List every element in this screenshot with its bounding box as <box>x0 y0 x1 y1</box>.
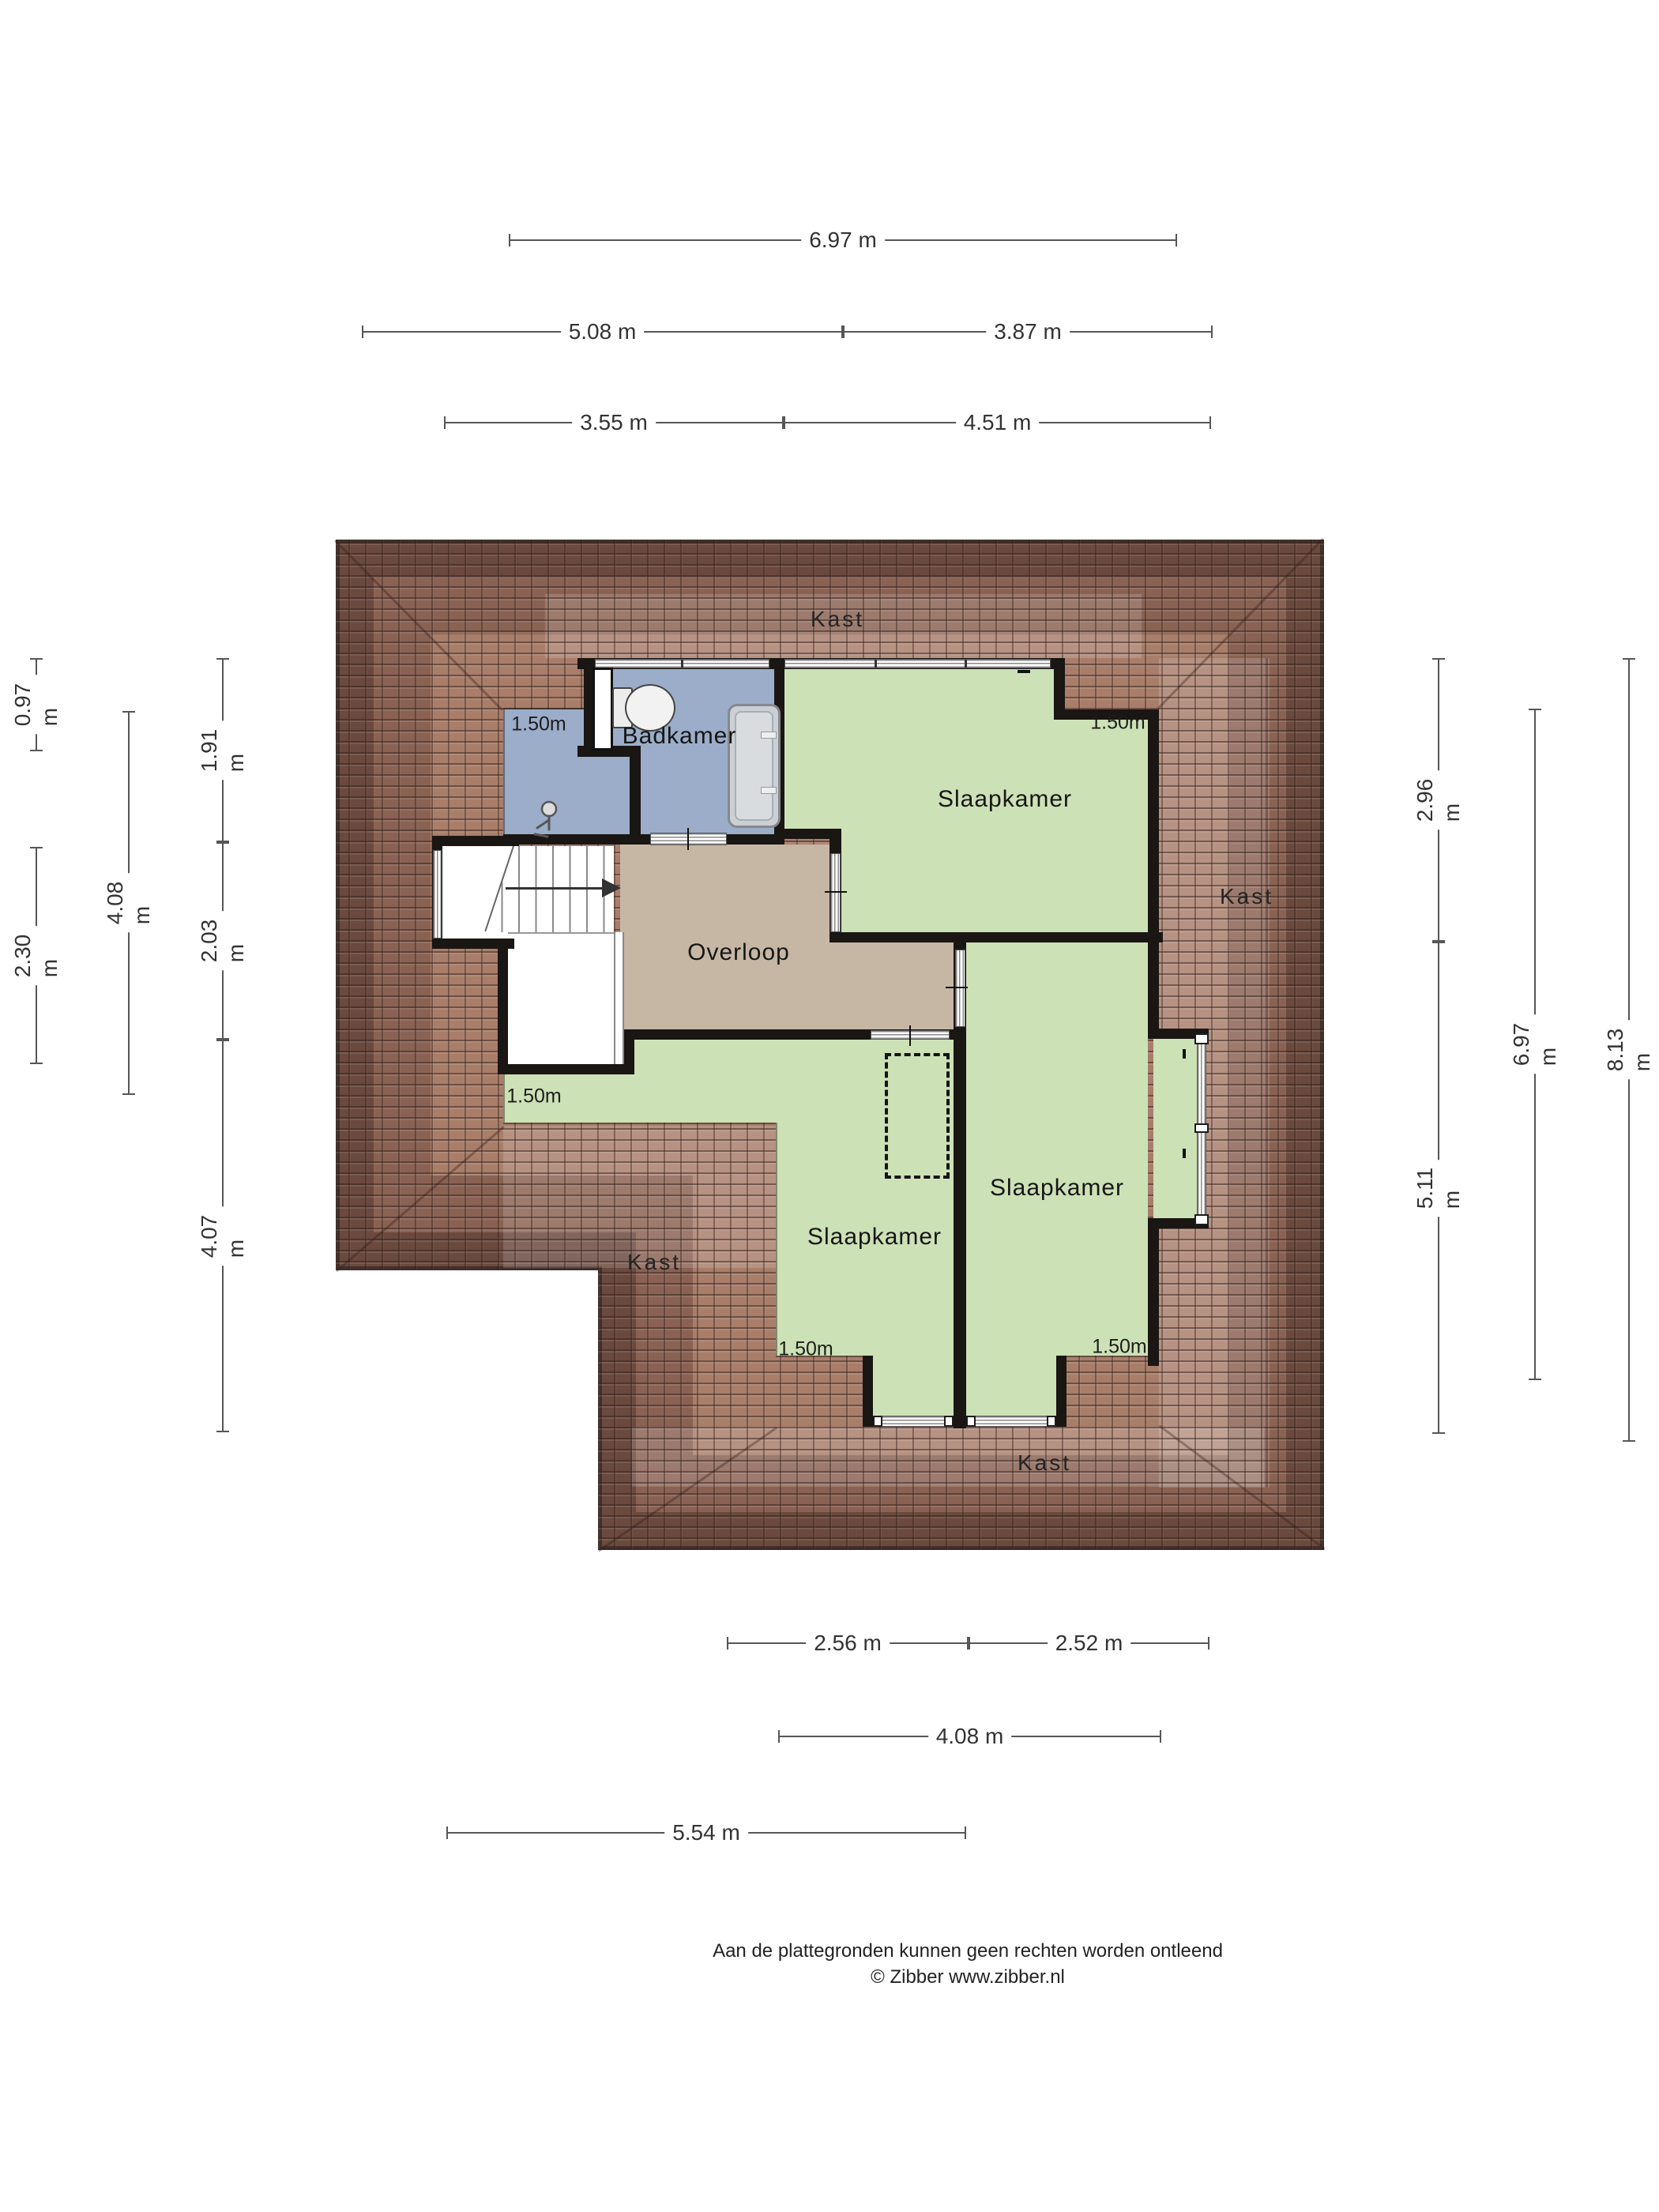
door-tick <box>687 828 689 850</box>
dimension-label: 3.87 m <box>986 318 1070 345</box>
stair-void-edge <box>508 932 614 934</box>
wall <box>498 1064 634 1074</box>
closet-label-bottom: Kast <box>1018 1450 1071 1476</box>
wall <box>863 1356 873 1427</box>
dimension-label: 6.97 m <box>1508 1015 1562 1074</box>
window-mullion <box>965 660 967 668</box>
dimension-label: 5.08 m <box>561 318 645 345</box>
knee-height-label: 1.50m <box>506 1085 561 1108</box>
room-label-slaapkamer-bottomright: Slaapkamer <box>990 1175 1124 1202</box>
dimension-label: 1.91 m <box>196 720 250 780</box>
door-slaapkamer-topright <box>830 853 841 932</box>
dimension-label: 8.13 m <box>1602 1021 1656 1080</box>
knee-height-label: 1.50m <box>511 713 566 736</box>
shower-icon <box>532 799 565 842</box>
room-label-badkamer: Badkamer <box>623 723 737 750</box>
closet-label-left: Kast <box>627 1250 681 1275</box>
room-label-overloop: Overloop <box>687 939 790 966</box>
dimension-label: 3.55 m <box>572 409 656 436</box>
faucet-icon <box>761 732 777 739</box>
window-cap <box>1194 1214 1209 1225</box>
dimension-label: 4.08 m <box>928 1723 1012 1750</box>
knee-edge <box>503 1074 505 1123</box>
dimension-label: 6.97 m <box>801 227 885 254</box>
door-tick <box>825 891 847 893</box>
dimension-label: 2.03 m <box>196 912 250 971</box>
room-slaapkamer-bottomright-dormer <box>1153 1039 1197 1218</box>
door-slaapkamer-bottomright <box>955 950 965 1027</box>
roof-ridge-line <box>1266 658 1268 1488</box>
window-dormer-south <box>873 1416 954 1427</box>
dimension-label: 4.51 m <box>956 409 1040 436</box>
window-cap <box>944 1416 954 1427</box>
room-label-slaapkamer-topright: Slaapkamer <box>938 786 1072 813</box>
door-tick <box>909 1025 911 1046</box>
window-cap <box>873 1416 882 1427</box>
dimension-label: 2.30 m <box>9 926 63 985</box>
room-slaapkamer-bottomright-dormer <box>966 1356 1056 1417</box>
stairs-arrow-icon <box>506 887 602 890</box>
wall <box>630 746 641 845</box>
window-cap <box>966 1416 976 1427</box>
floor-plan-page: Badkamer Slaapkamer Overloop Slaapkamer … <box>0 0 1659 2212</box>
dimension-label: 2.56 m <box>806 1630 890 1657</box>
copyright-text: © Zibber www.zibber.nl <box>871 1966 1065 1988</box>
dimension-label: 5.54 m <box>664 1819 748 1846</box>
window-stairwell <box>433 850 442 939</box>
bathtub-inner <box>735 711 773 821</box>
wall <box>1148 709 1159 1039</box>
dimension-label: 5.11 m <box>1412 1159 1465 1216</box>
knee-height-label: 1.50m <box>1090 712 1145 735</box>
window-dormer-south <box>966 1416 1056 1427</box>
window-cap <box>1194 1033 1209 1044</box>
closet-label-right: Kast <box>1220 884 1273 909</box>
room-slaapkamer-bottommid-dormer <box>873 1356 954 1417</box>
knee-height-label: 1.50m <box>778 1338 833 1361</box>
room-slaapkamer-bottomright <box>966 942 1148 1356</box>
wall <box>432 939 514 949</box>
disclaimer-text: Aan de plattegronden kunnen geen rechten… <box>713 1940 1223 1962</box>
faucet-icon <box>761 787 777 794</box>
dimension-label: 2.96 m <box>1412 770 1465 829</box>
wall <box>432 836 519 846</box>
window-mullion <box>875 660 877 668</box>
knee-edge <box>776 1123 777 1356</box>
vent-tick <box>1183 1149 1186 1158</box>
void-dashed-outline <box>885 1053 950 1179</box>
window <box>595 659 769 668</box>
wall <box>498 939 508 1074</box>
room-label-slaapkamer-bottommid: Slaapkamer <box>807 1224 942 1251</box>
closet-label-top: Kast <box>811 607 864 632</box>
wall <box>1148 1218 1159 1366</box>
vent-tick <box>1183 1049 1186 1059</box>
knee-height-label: 1.50m <box>1092 1336 1146 1359</box>
partition-wall <box>592 668 613 750</box>
stair-void <box>508 932 614 1064</box>
dimension-label: 4.07 m <box>196 1206 250 1266</box>
stair-railing <box>614 932 624 1074</box>
dimension-label: 0.97 m <box>9 675 63 735</box>
vent-tick <box>1018 670 1030 673</box>
window-cap <box>1194 1123 1209 1133</box>
dimension-label: 2.52 m <box>1048 1630 1131 1657</box>
window <box>784 659 1051 668</box>
dimension-label: 4.08 m <box>102 874 156 933</box>
knee-edge <box>503 709 505 834</box>
window-mullion <box>681 660 683 668</box>
wall <box>829 932 1163 942</box>
stairs-arrow-head-icon <box>602 878 621 897</box>
knee-edge <box>503 1123 776 1124</box>
door-tick <box>946 987 968 988</box>
wall <box>1056 1356 1066 1427</box>
window-cap <box>1047 1416 1056 1427</box>
